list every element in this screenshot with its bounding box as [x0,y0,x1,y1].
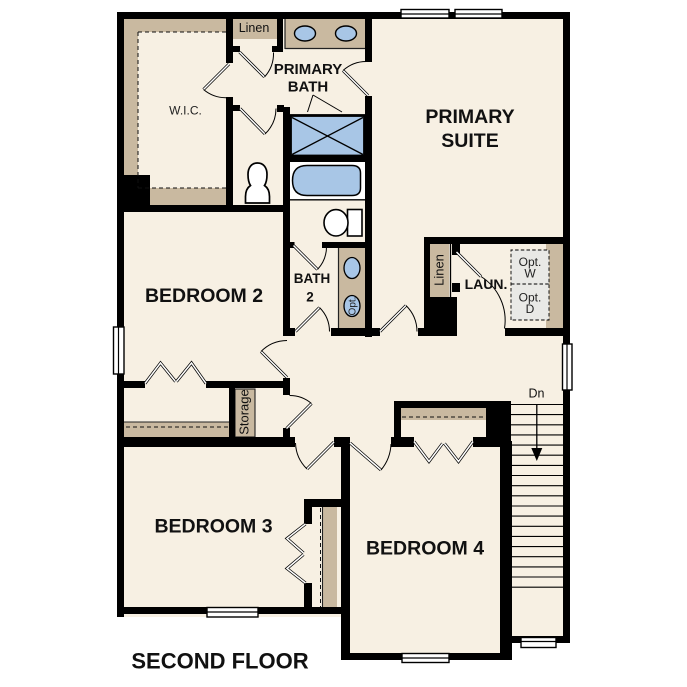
svg-text:LAUN.: LAUN. [465,276,508,292]
svg-text:BEDROOM 4: BEDROOM 4 [366,538,484,560]
svg-text:W: W [524,267,536,281]
svg-text:Linen: Linen [432,254,447,286]
svg-text:BEDROOM 3: BEDROOM 3 [154,516,272,538]
svg-text:SECOND FLOOR: SECOND FLOOR [131,649,308,674]
svg-text:PRIMARY: PRIMARY [274,61,343,78]
svg-text:BATH: BATH [294,271,331,286]
svg-text:BEDROOM 2: BEDROOM 2 [145,285,263,307]
svg-text:PRIMARY: PRIMARY [425,106,514,128]
svg-text:SUITE: SUITE [441,130,498,152]
svg-text:Linen: Linen [239,21,270,35]
svg-text:W.I.C.: W.I.C. [169,104,202,118]
svg-text:D: D [526,302,535,316]
svg-text:Dn: Dn [529,387,545,401]
svg-text:Opt.: Opt. [348,297,359,316]
svg-text:BATH: BATH [288,79,329,96]
svg-text:2: 2 [306,290,314,305]
svg-text:Storage: Storage [237,389,252,435]
